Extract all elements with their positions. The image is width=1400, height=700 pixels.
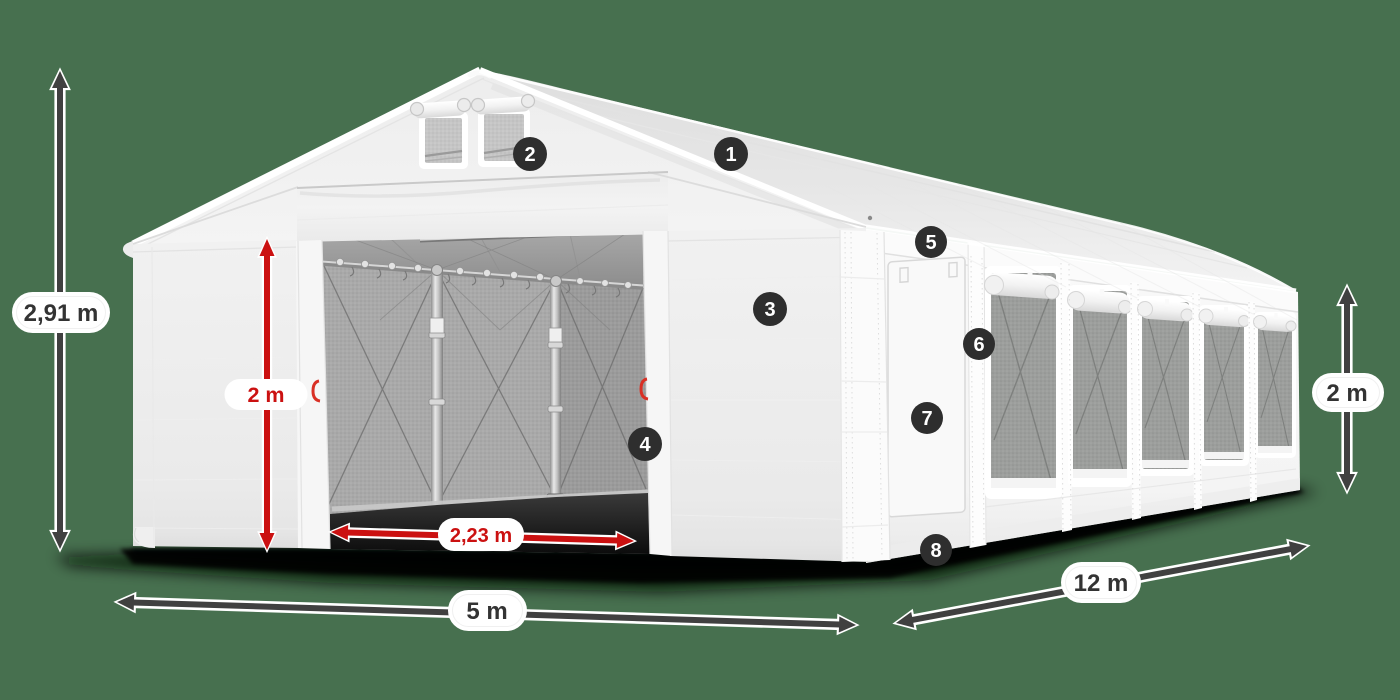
svg-text:6: 6 bbox=[973, 334, 984, 356]
svg-text:8: 8 bbox=[930, 540, 941, 562]
svg-text:2,23 m: 2,23 m bbox=[450, 525, 512, 547]
svg-text:12 m: 12 m bbox=[1074, 570, 1129, 597]
svg-text:7: 7 bbox=[921, 408, 932, 430]
svg-text:3: 3 bbox=[764, 299, 775, 321]
svg-text:2,91 m: 2,91 m bbox=[24, 300, 99, 327]
svg-text:5: 5 bbox=[925, 232, 936, 254]
svg-text:1: 1 bbox=[725, 144, 736, 166]
svg-text:5 m: 5 m bbox=[466, 598, 507, 625]
svg-text:4: 4 bbox=[639, 434, 651, 456]
svg-text:2 m: 2 m bbox=[247, 383, 284, 407]
svg-text:2 m: 2 m bbox=[1326, 380, 1367, 407]
svg-text:2: 2 bbox=[524, 144, 535, 166]
